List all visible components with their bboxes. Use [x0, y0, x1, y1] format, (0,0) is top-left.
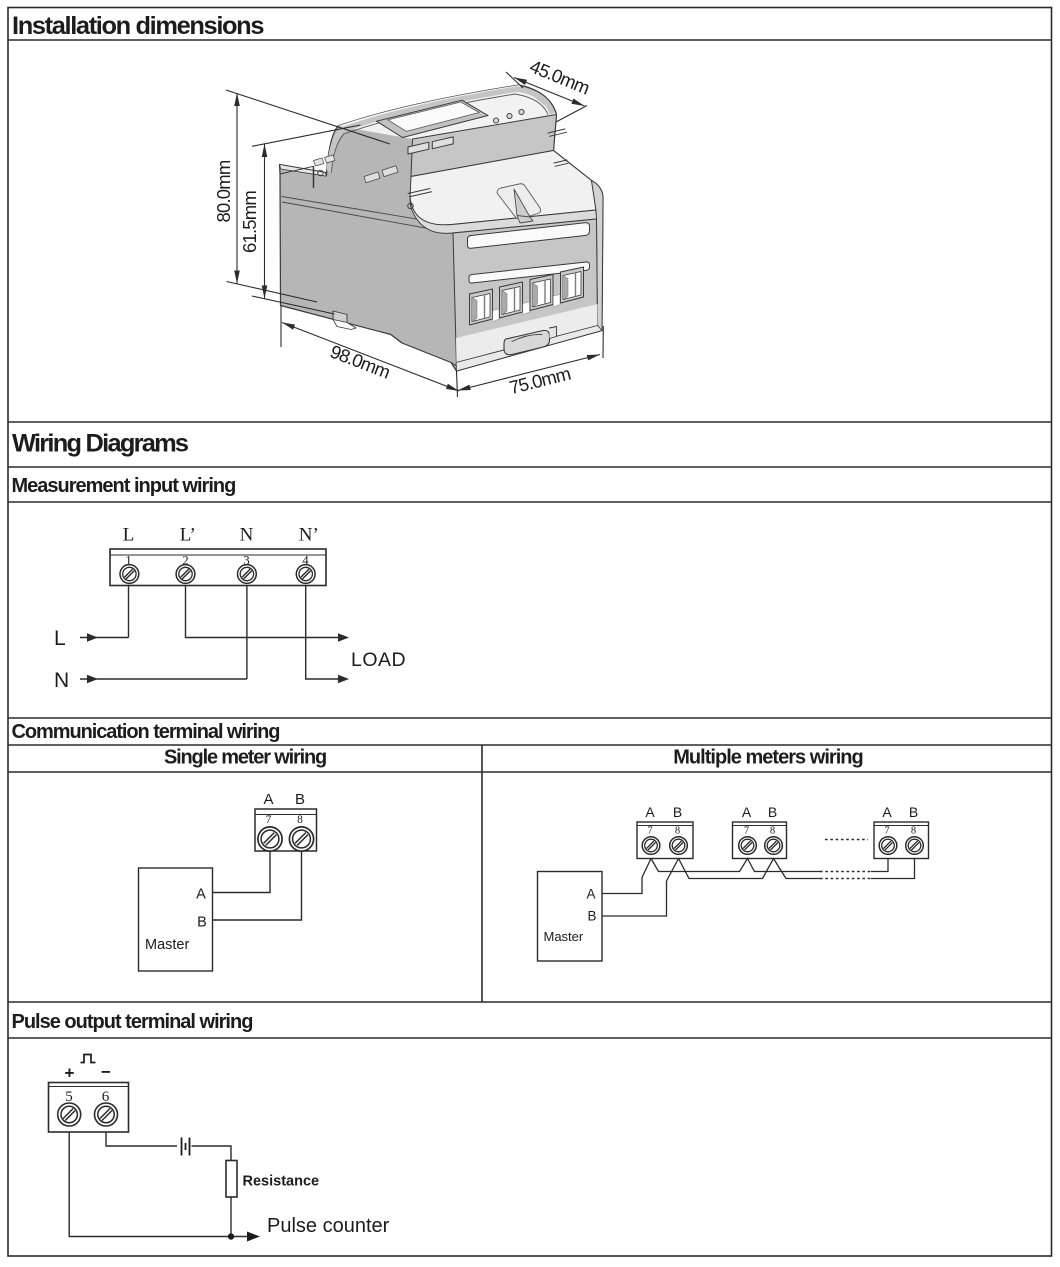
svg-text:B: B	[768, 804, 777, 820]
svg-text:Pulse counter: Pulse counter	[267, 1215, 390, 1237]
svg-text:61.5mm: 61.5mm	[239, 191, 260, 253]
svg-text:8: 8	[297, 814, 303, 826]
svg-text:Master: Master	[544, 929, 584, 944]
svg-text:Multiple meters wiring: Multiple meters wiring	[673, 747, 863, 769]
svg-text:B: B	[673, 804, 682, 820]
svg-text:A: A	[263, 791, 273, 808]
svg-text:7: 7	[266, 814, 272, 826]
svg-text:Wiring Diagrams: Wiring Diagrams	[12, 430, 189, 458]
svg-text:L’: L’	[180, 525, 196, 546]
svg-text:B: B	[587, 909, 596, 924]
svg-text:7: 7	[744, 826, 749, 837]
svg-text:A: A	[586, 887, 595, 902]
svg-text:A: A	[645, 804, 655, 820]
svg-text:98.0mm: 98.0mm	[327, 341, 393, 383]
svg-text:A: A	[742, 804, 752, 820]
svg-text:Pulse output terminal wiring: Pulse output terminal wiring	[12, 1011, 253, 1033]
svg-text:80.0mm: 80.0mm	[213, 160, 234, 222]
svg-text:B: B	[295, 791, 305, 808]
svg-text:Communication terminal wiring: Communication terminal wiring	[12, 721, 280, 743]
svg-text:+: +	[65, 1064, 75, 1083]
svg-text:Master: Master	[145, 937, 189, 953]
svg-text:Resistance: Resistance	[243, 1174, 320, 1190]
svg-text:Measurement input wiring: Measurement input wiring	[12, 475, 236, 497]
svg-text:N: N	[240, 525, 254, 546]
svg-text:A: A	[882, 804, 892, 820]
svg-text:−: −	[101, 1063, 111, 1082]
svg-text:75.0mm: 75.0mm	[507, 363, 573, 398]
svg-text:Installation dimensions: Installation dimensions	[12, 12, 264, 40]
svg-text:8: 8	[770, 826, 775, 837]
svg-text:B: B	[197, 915, 207, 931]
svg-text:LOAD: LOAD	[351, 649, 406, 671]
svg-text:Single meter wiring: Single meter wiring	[164, 747, 326, 769]
svg-text:L: L	[54, 627, 66, 650]
svg-text:7: 7	[647, 826, 652, 837]
svg-text:7: 7	[884, 826, 889, 837]
svg-text:L: L	[123, 525, 135, 546]
svg-text:A: A	[196, 887, 206, 903]
svg-text:8: 8	[675, 826, 680, 837]
svg-text:N: N	[54, 669, 69, 692]
svg-text:N’: N’	[299, 525, 319, 546]
svg-text:B: B	[909, 804, 918, 820]
svg-text:8: 8	[911, 826, 916, 837]
